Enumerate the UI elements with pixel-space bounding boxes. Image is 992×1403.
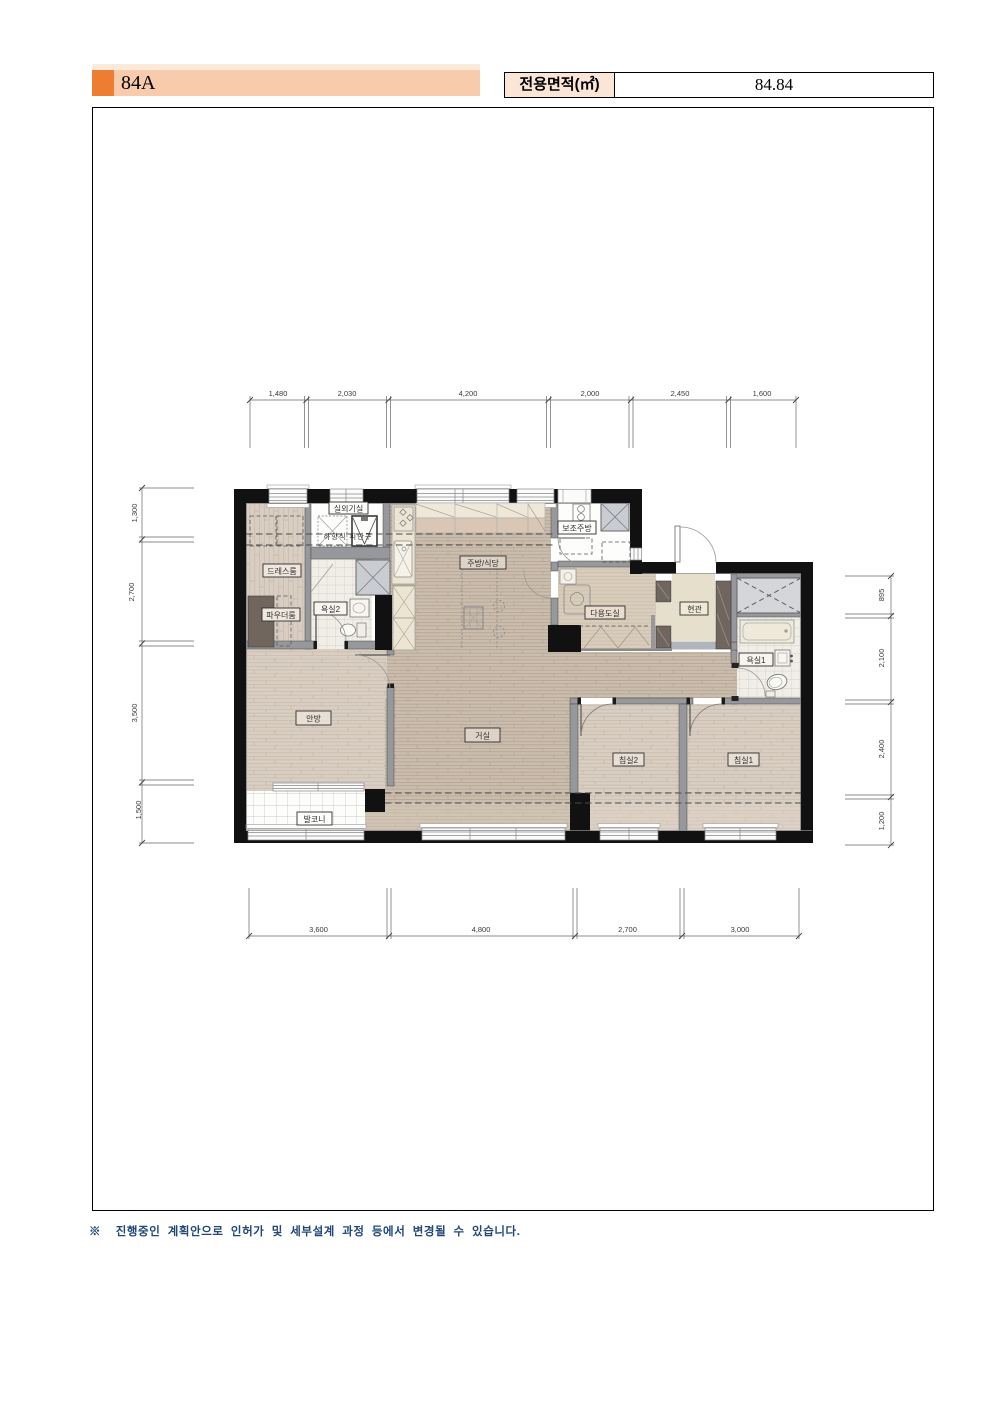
svg-text:욕실2: 욕실2 xyxy=(321,604,341,614)
svg-text:2,400: 2,400 xyxy=(877,740,886,759)
svg-text:1,200: 1,200 xyxy=(877,812,886,831)
svg-text:1,300: 1,300 xyxy=(130,504,139,523)
svg-text:현관: 현관 xyxy=(687,604,702,614)
svg-text:보조주방: 보조주방 xyxy=(562,523,592,533)
svg-text:1,480: 1,480 xyxy=(269,389,288,398)
svg-text:2,700: 2,700 xyxy=(127,583,136,602)
svg-text:욕실1: 욕실1 xyxy=(746,655,766,665)
svg-text:2,000: 2,000 xyxy=(581,389,600,398)
svg-text:3,600: 3,600 xyxy=(309,925,328,934)
svg-text:안방: 안방 xyxy=(306,714,321,724)
svg-text:3,000: 3,000 xyxy=(731,925,750,934)
svg-text:거실: 거실 xyxy=(475,731,490,741)
svg-text:3,500: 3,500 xyxy=(130,704,139,723)
svg-text:2,450: 2,450 xyxy=(671,389,690,398)
svg-text:발코니: 발코니 xyxy=(303,814,325,824)
svg-text:파우더룸: 파우더룸 xyxy=(266,611,295,620)
svg-text:4,800: 4,800 xyxy=(472,925,491,934)
svg-text:실외기실: 실외기실 xyxy=(334,504,363,514)
svg-text:895: 895 xyxy=(877,589,886,602)
svg-text:다용도실: 다용도실 xyxy=(590,608,619,618)
svg-text:2,100: 2,100 xyxy=(877,649,886,668)
svg-text:2,700: 2,700 xyxy=(618,925,637,934)
svg-text:1,500: 1,500 xyxy=(134,801,143,820)
svg-text:1,600: 1,600 xyxy=(753,389,772,398)
svg-text:드레스룸: 드레스룸 xyxy=(267,567,296,576)
svg-text:침실2: 침실2 xyxy=(619,755,639,765)
svg-text:침실1: 침실1 xyxy=(734,755,754,765)
svg-text:하향식 피난구: 하향식 피난구 xyxy=(324,532,373,541)
svg-text:주방/식당: 주방/식당 xyxy=(467,558,499,568)
svg-text:4,200: 4,200 xyxy=(459,389,478,398)
svg-text:2,030: 2,030 xyxy=(338,389,357,398)
